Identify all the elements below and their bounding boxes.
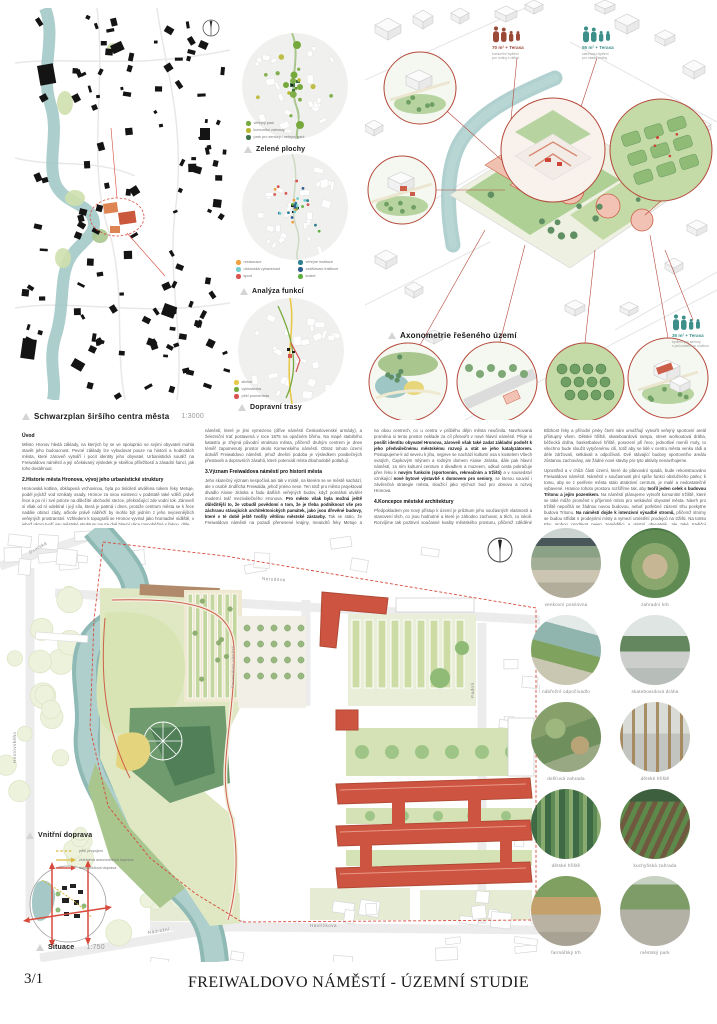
gallery-item: farmářský trh — [531, 876, 601, 955]
diagram-functions — [242, 154, 348, 260]
photo-skateboardova-draha — [620, 615, 690, 685]
photo-label: městský park — [620, 950, 690, 955]
gallery-item: nábřežní odpočívadlo — [531, 615, 601, 694]
essay-column-3: na obou centrech, co u centra v průběhu … — [374, 428, 532, 525]
triangle-marker-icon — [388, 332, 396, 339]
axonometry-panel — [365, 0, 717, 420]
photo-destova-zahrada — [531, 702, 601, 772]
essay-column-4: Blízkost řeky a přírodní prvky čtvrti ná… — [544, 428, 706, 525]
legend-dot — [246, 135, 251, 140]
siteplan-panel: Dvorská Nerudova Hostovského Nádražní Ha… — [0, 528, 540, 962]
triangle-marker-icon — [238, 404, 246, 411]
photo-label: farmářský trh — [531, 950, 601, 955]
north-arrow-icon — [488, 538, 512, 562]
photo-detske-hriste — [620, 702, 690, 772]
family-figures-icon — [492, 26, 526, 44]
inner-transport-heading: Vnitřní doprava — [26, 832, 92, 839]
photo-nabrezni-odpocivadlo — [531, 615, 601, 685]
situace-scale: 1:750 — [86, 944, 105, 951]
gallery-item: skateboardová dráha — [620, 615, 690, 694]
essay-column-2: náměstí, které je jimi vymezeno (dříve n… — [205, 428, 362, 525]
photo-label: venkovní posilovna — [531, 602, 601, 607]
triangle-marker-icon — [26, 832, 34, 839]
photo-label: dešťová zahrada — [531, 776, 601, 781]
triangle-marker-icon — [36, 944, 44, 951]
triangle-marker-icon — [240, 288, 248, 295]
photo-label: dětské hřiště — [531, 863, 601, 868]
triangle-marker-icon — [244, 146, 252, 153]
dashed-line-icon — [56, 848, 76, 854]
functions-legend: restaurace veřejné instituce občanská vy… — [236, 260, 362, 279]
gallery-item: zahradní krb — [620, 528, 690, 607]
schwarzplan-scale: 1:3000 — [181, 413, 204, 420]
transport-legend: silnice cyklostezka pěší promenáda — [234, 380, 269, 399]
housing-callout-3: 35 m² + Terasa bydlení pro seniory s peč… — [672, 314, 716, 349]
arrow-icon — [56, 857, 76, 863]
triangle-marker-icon — [22, 413, 30, 420]
svg-text:Havlíčkova: Havlíčkova — [310, 923, 337, 928]
gallery-item: městský park — [620, 876, 690, 955]
poster-sheet: Schwarzplan širšího centra města 1:3000 … — [0, 0, 717, 1024]
svg-text:Hostovského: Hostovského — [12, 731, 17, 763]
essay-heading-koncepce: 4.Koncepce městské architektury — [374, 499, 532, 506]
gallery-item: dešťová zahrada — [531, 702, 601, 781]
legend-dot — [246, 128, 251, 133]
essay-heading-vyznam: 3.Význam Freiwaldova náměstí pro histori… — [205, 469, 362, 476]
photo-venkovni-posilovna — [531, 528, 601, 598]
page-title: FREIWALDOVO NÁMĚSTÍ - ÚZEMNÍ STUDIE — [0, 974, 717, 992]
central-park — [88, 584, 242, 926]
photo-detske-hriste-les — [531, 789, 601, 859]
green-areas-heading: Zelené plochy — [244, 146, 305, 153]
family-figures-icon — [582, 26, 616, 44]
photo-label: skateboardová dráha — [620, 689, 690, 694]
essay-heading-uvod: Úvod — [22, 433, 194, 440]
housing-callout-1: 70 m² + Terasa komunitní bydlení pro rod… — [492, 26, 564, 61]
photo-label: kuchyňská zahrada — [620, 863, 690, 868]
schwarzplan-heading-label: Schwarzplan širšího centra města — [34, 412, 169, 421]
essay-column-1: Úvod Město Hronov hledá základy, na kter… — [22, 428, 194, 525]
schwarzplan-heading: Schwarzplan širšího centra města 1:3000 — [22, 412, 204, 421]
schwarzplan-map — [15, 8, 230, 400]
essay-heading-historie: 2.Historie města Hronova, vývoj jeho urb… — [22, 477, 194, 484]
bridge — [36, 632, 88, 643]
gallery-item: venkovní posilovna — [531, 528, 601, 607]
housing-callout-2: 55 m² + Terasa startovací bydlení pro ml… — [582, 26, 654, 61]
axonometry-heading: Axonometrie řešeného území — [388, 331, 517, 340]
inner-transport-legend: pěší propojení zklidněná automobilová do… — [56, 848, 133, 874]
photo-zahradni-krb — [620, 528, 690, 598]
gallery-item: kuchyňská zahrada — [620, 789, 690, 868]
photo-label: zahradní krb — [620, 602, 690, 607]
photo-label: nábřežní odpočívadlo — [531, 689, 601, 694]
svg-text:Padolí: Padolí — [470, 682, 475, 698]
photo-kuchynska-zahrada — [620, 789, 690, 859]
gallery-item: dětské hřiště — [620, 702, 690, 781]
photo-mestsky-park — [620, 876, 690, 946]
photo-farmarsky-trh — [531, 876, 601, 946]
gallery-item: dětské hřiště — [531, 789, 601, 868]
legend-dot — [246, 121, 251, 126]
north-arrow-icon — [203, 20, 219, 36]
functions-heading: Analýza funkcí — [240, 288, 304, 295]
family-figures-icon — [672, 314, 706, 332]
community-gardens — [188, 594, 237, 698]
arrow-icon — [56, 865, 76, 871]
svg-text:Nerudova: Nerudova — [262, 576, 286, 582]
green-areas-legend: veřejný park komunitní zahrady park pro … — [246, 121, 305, 140]
transport-heading: Dopravní trasy — [238, 404, 302, 411]
svg-text:Freiwaldovo náměstí: Freiwaldovo náměstí — [231, 645, 235, 688]
situace-heading: Situace 1:750 — [36, 944, 105, 951]
photo-label: dětské hřiště — [620, 776, 690, 781]
